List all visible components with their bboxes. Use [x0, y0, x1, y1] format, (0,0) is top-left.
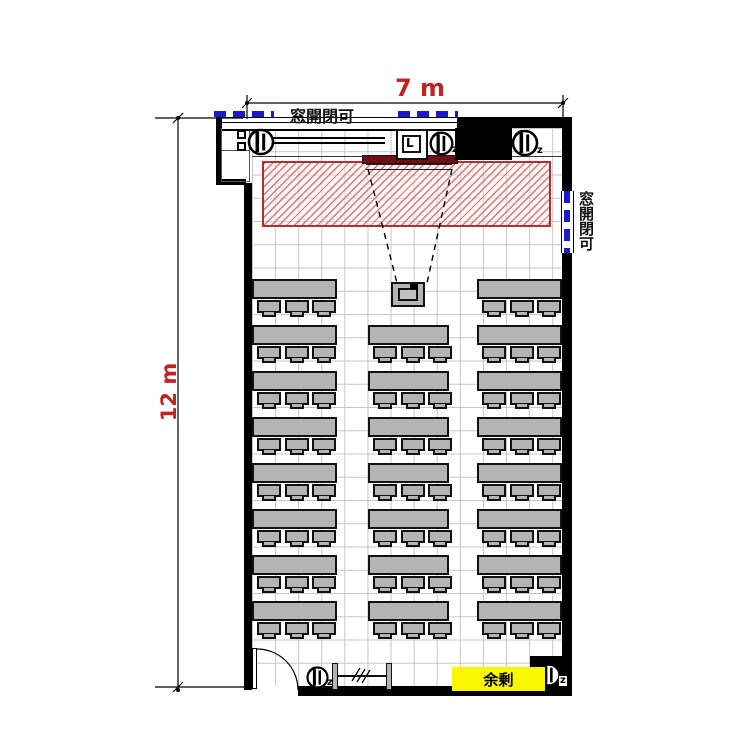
window-openable-label-top: 窓開閉可 [280, 103, 364, 127]
linework-overlay [0, 0, 750, 750]
dimension-dots [176, 101, 565, 692]
dimension-height-label: 12 m [157, 362, 181, 422]
floorplan-canvas: L 余剰 z z z z [0, 0, 750, 750]
projector-cone [368, 169, 452, 283]
window-openable-label-right: 窓開閉可 [576, 191, 597, 259]
door-swing-arc [257, 649, 298, 690]
dimension-lines [155, 95, 568, 692]
partition-hatch-marks [352, 668, 370, 683]
dimension-width-label: 7 m [380, 74, 460, 102]
